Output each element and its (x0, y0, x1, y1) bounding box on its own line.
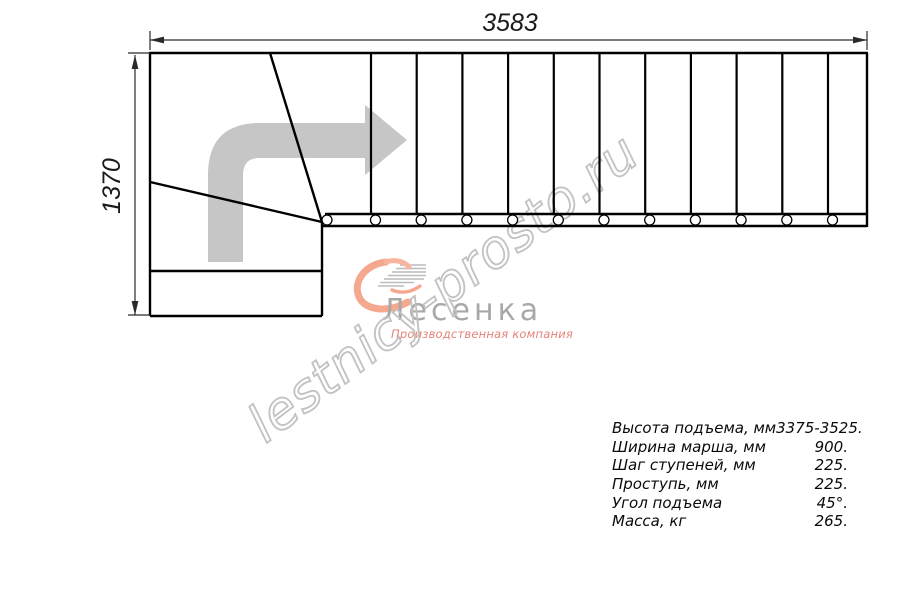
tread-bolt (645, 215, 655, 225)
tread-bolt (553, 215, 563, 225)
tread-bolt (322, 215, 332, 225)
tread-bolt (690, 215, 700, 225)
arrowhead (132, 301, 139, 315)
tread-bolt (416, 215, 426, 225)
tread-bolt (508, 215, 518, 225)
tread-bolt (828, 215, 838, 225)
step-lines (371, 53, 828, 214)
spec-label: Ширина марша, мм (612, 438, 766, 457)
spec-value: 265. (815, 512, 848, 531)
spec-value: 225. (815, 475, 848, 494)
tread-bolt (736, 215, 746, 225)
arrowhead (132, 55, 139, 69)
dimension-left (128, 53, 150, 315)
tread-bolt (462, 215, 472, 225)
height-dimension-label: 1370 (98, 150, 128, 222)
width-dimension-label: 3583 (430, 9, 590, 38)
direction-arrow-icon (208, 105, 407, 262)
spec-label: Масса, кг (612, 512, 686, 531)
spec-value: 45°. (817, 494, 848, 513)
tread-bolts (322, 215, 838, 225)
spec-row: Высота подъема, мм 3375-3525. (612, 419, 848, 438)
spec-label: Высота подъема, мм (612, 419, 776, 438)
spec-row: Ширина марша, мм 900. (612, 438, 848, 457)
spec-value: 900. (815, 438, 848, 457)
tread-bolt (371, 215, 381, 225)
spec-label: Проступь, мм (612, 475, 719, 494)
spec-row: Угол подъема 45°. (612, 494, 848, 513)
specifications-list: Высота подъема, мм 3375-3525. Ширина мар… (612, 419, 848, 531)
spec-label: Угол подъема (612, 494, 722, 513)
spec-value: 3375-3525. (776, 419, 863, 438)
arrowhead (150, 37, 164, 44)
spec-row: Проступь, мм 225. (612, 475, 848, 494)
tread-bolt (782, 215, 792, 225)
spec-row: Шаг ступеней, мм 225. (612, 456, 848, 475)
blueprint-page: Лесенка Производственная компания lestni… (0, 0, 900, 600)
spec-value: 225. (815, 456, 848, 475)
arrowhead (853, 37, 867, 44)
spec-label: Шаг ступеней, мм (612, 456, 756, 475)
spec-row: Масса, кг 265. (612, 512, 848, 531)
tread-bolt (599, 215, 609, 225)
